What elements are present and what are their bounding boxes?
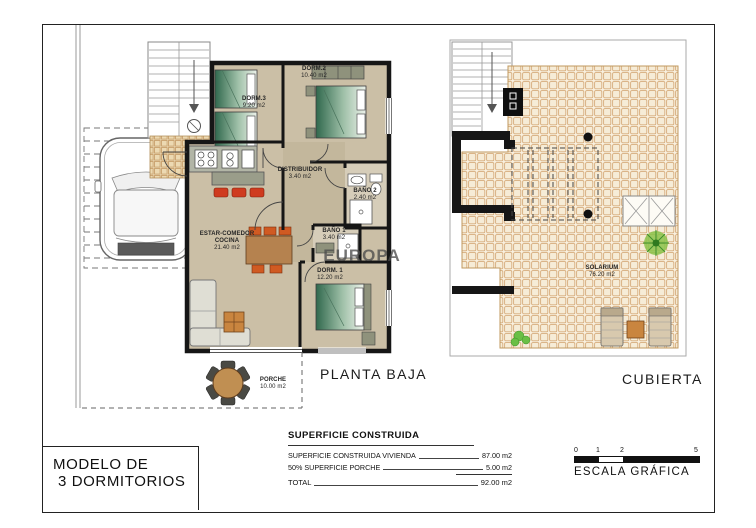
scale-segment [575, 457, 599, 462]
staircase-exterior [148, 42, 210, 138]
room-area: 76.20 m2 [576, 272, 628, 279]
bar-stools [214, 188, 264, 197]
model-title-line1: MODELO DE [53, 456, 198, 473]
summary-row-value: 5.00 m2 [486, 463, 512, 472]
leader-line [419, 458, 479, 459]
scale-tick: 0 [574, 447, 578, 454]
scale-tick: 2 [620, 447, 624, 454]
room-area: 21.40 m2 [198, 245, 256, 252]
room-area: 3.40 m2 [314, 235, 354, 242]
total-label: TOTAL [288, 478, 311, 487]
room-label-estar-comedor: ESTAR-COMEDOR COCINA 21.40 m2 [198, 231, 256, 251]
room-name: DORM.2 [288, 66, 340, 73]
room-name: DORM.3 [228, 96, 280, 103]
room-name: BAÑO 1 [314, 228, 354, 235]
summary-row-value: 87.00 m2 [482, 451, 512, 460]
stair-bulkhead [503, 88, 523, 116]
room-name: DISTRIBUIDOR [272, 167, 328, 174]
room-label-dorm3: DORM.3 9.20 m2 [228, 96, 280, 110]
summary-total-row: TOTAL 92.00 m2 [288, 478, 512, 487]
summary-row-label: SUPERFICIE CONSTRUIDA VIVIENDA [288, 451, 416, 460]
room-label-dorm1: DORM. 1 12.20 m2 [304, 268, 356, 282]
watermark: EUROPA [310, 246, 414, 266]
scale-segment [599, 457, 623, 462]
leader-line [314, 485, 477, 486]
graphic-scale: 0 1 2 5 ESCALA GRÁFICA [574, 447, 706, 478]
roof-vent [584, 133, 593, 142]
porch-table [205, 361, 250, 405]
room-area: 10.40 m2 [288, 73, 340, 80]
room-name: SOLARIUM [576, 265, 628, 272]
surface-summary: SUPERFICIE CONSTRUIDA SUPERFICIE CONSTRU… [288, 430, 512, 487]
cubierta-plan [450, 40, 686, 356]
total-value: 92.00 m2 [481, 478, 512, 487]
drawing-sheet: DORM.3 9.20 m2 DORM.2 10.40 m2 DISTRIBUI… [0, 0, 756, 528]
total-separator [456, 474, 512, 475]
planta-baja-title: PLANTA BAJA [320, 366, 427, 382]
lounger-table [627, 321, 644, 338]
model-title-line2: 3 DORMITORIOS [53, 473, 198, 490]
property-line [76, 25, 80, 408]
room-name: DORM. 1 [304, 268, 356, 275]
room-area: 10.00 m2 [252, 384, 294, 391]
skylight [623, 196, 675, 226]
kitchen-bar [212, 172, 264, 185]
room-area: 9.20 m2 [228, 103, 280, 110]
scale-ticks: 0 1 2 5 [574, 447, 706, 456]
summary-row: 50% SUPERFICIE PORCHE 5.00 m2 [288, 463, 512, 472]
room-area: 2.40 m2 [342, 195, 388, 202]
room-label-dorm2: DORM.2 10.40 m2 [288, 66, 340, 80]
room-area: 3.40 m2 [272, 174, 328, 181]
room-label-porche: PORCHE 10.00 m2 [252, 377, 294, 391]
room-label-solarium: SOLARIUM 76.20 m2 [576, 265, 628, 279]
room-label-bano1: BAÑO 1 3.40 m2 [314, 228, 354, 242]
room-label-bano2: BAÑO 2 2.40 m2 [342, 188, 388, 202]
scale-label: ESCALA GRÁFICA [574, 466, 706, 478]
scale-segment [623, 457, 699, 462]
scale-bar [574, 456, 700, 463]
room-name: BAÑO 2 [342, 188, 388, 195]
room-name: PORCHE [252, 377, 294, 384]
summary-row: SUPERFICIE CONSTRUIDA VIVIENDA 87.00 m2 [288, 451, 512, 460]
summary-title: SUPERFICIE CONSTRUIDA [288, 430, 474, 446]
room-label-distribuidor: DISTRIBUIDOR 3.40 m2 [272, 167, 328, 181]
scale-tick: 5 [694, 447, 698, 454]
side-table [224, 312, 244, 332]
summary-row-label: 50% SUPERFICIE PORCHE [288, 463, 380, 472]
leader-line [383, 469, 483, 470]
title-block: MODELO DE 3 DORMITORIOS [43, 446, 199, 510]
roof-vent [584, 210, 593, 219]
scale-tick: 1 [596, 447, 600, 454]
planta-baja-plan [76, 25, 393, 408]
cubierta-title: CUBIERTA [622, 371, 703, 387]
room-name: ESTAR-COMEDOR COCINA [198, 231, 256, 245]
room-area: 12.20 m2 [304, 275, 356, 282]
